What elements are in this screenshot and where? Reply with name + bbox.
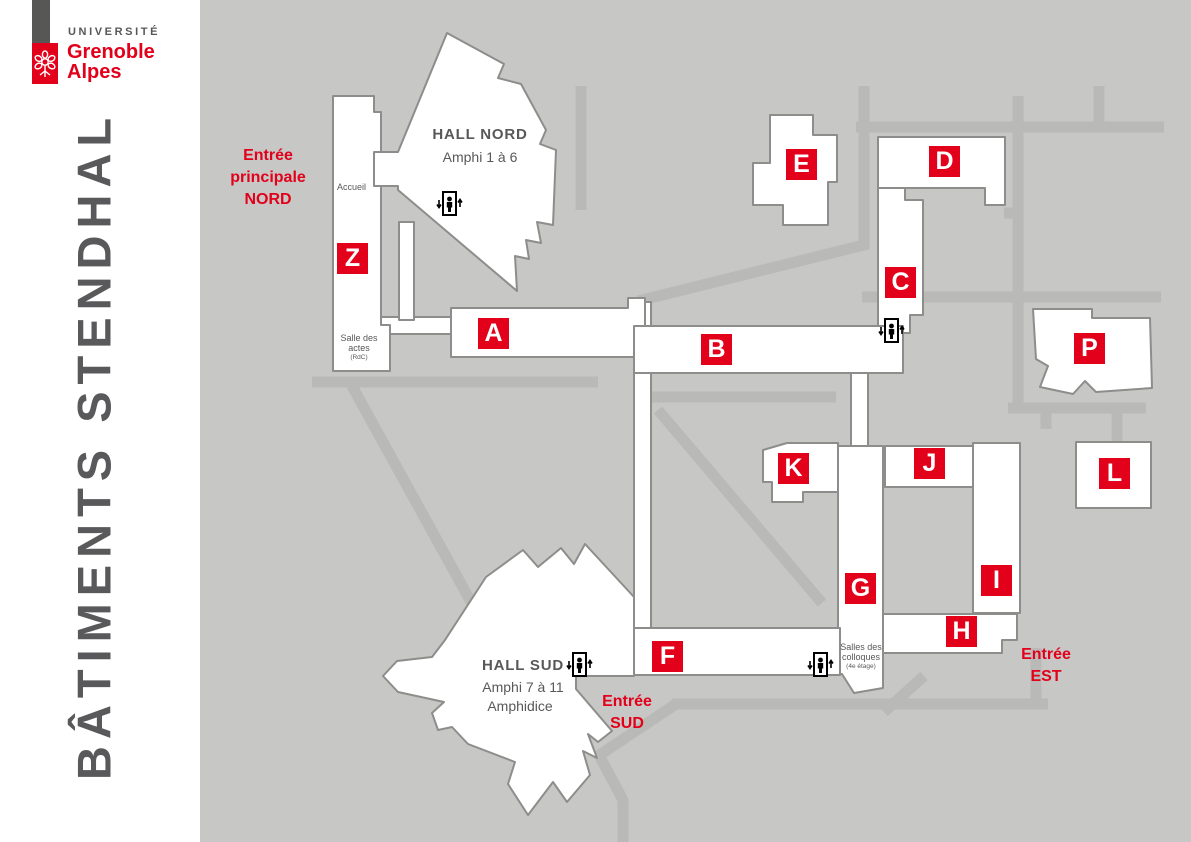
entrance-sud-line2: SUD [610,715,644,732]
hall-nord-title: HALL NORD [410,126,550,143]
building-marker-k: K [778,453,809,484]
corridor-hallnord-a [399,222,414,320]
building-marker-a: A [478,318,509,349]
logo-red-block [32,43,58,84]
hall-nord-subtitle: Amphi 1 à 6 [410,149,550,165]
entrance-sud-label: Entrée SUD [577,691,677,735]
salles-des-colloques-label: Salles des colloques (4e étage) [830,642,892,672]
entrance-est-label: Entrée EST [996,644,1096,688]
salle-des-actes-line1: Salle des [340,333,377,343]
building-marker-i: I [981,565,1012,596]
building-z [333,96,390,371]
building-marker-z: Z [337,243,368,274]
building-marker-e: E [786,149,817,180]
entrance-nord-label: Entrée principale NORD [207,145,329,211]
salle-des-actes-note: (RdC) [328,353,390,363]
accueil-label: Accueil [337,182,366,192]
building-marker-c: C [885,267,916,298]
salle-des-actes-line2: actes [348,343,370,353]
building-marker-h: H [946,616,977,647]
entrance-est-line2: EST [1030,668,1061,685]
salles-des-colloques-note: (4e étage) [830,662,892,672]
entrance-est-line1: Entrée [1021,646,1071,663]
salles-des-colloques-line1: Salles des [840,642,882,652]
corridor-b-g [851,373,868,448]
building-b [634,326,903,373]
building-marker-g: G [845,573,876,604]
building-marker-d: D [929,146,960,177]
hall-sud-title: HALL SUD [453,657,593,674]
logo-alpes: Alpes [67,61,121,84]
building-marker-j: J [914,448,945,479]
entrance-nord-line2: principale [230,169,306,186]
entrance-sud-line1: Entrée [602,693,652,710]
building-marker-f: F [652,641,683,672]
salles-des-colloques-line2: colloques [842,652,880,662]
building-marker-b: B [701,334,732,365]
hall-sud-subtitle2: Amphidice [450,698,590,714]
logo-gray-bar [32,0,50,43]
building-c [878,188,923,333]
building-marker-p: P [1074,333,1105,364]
logo-universite: UNIVERSITÉ [68,26,160,38]
entrance-nord-line3: NORD [244,191,291,208]
hall-sud-subtitle: Amphi 7 à 11 [453,679,593,695]
entrance-nord-line1: Entrée [243,147,293,164]
flower-icon [34,49,56,79]
page-title: BÂTIMENTS STENDHAL [58,150,130,740]
salle-des-actes-label: Salle des actes (RdC) [328,333,390,363]
building-marker-l: L [1099,458,1130,489]
